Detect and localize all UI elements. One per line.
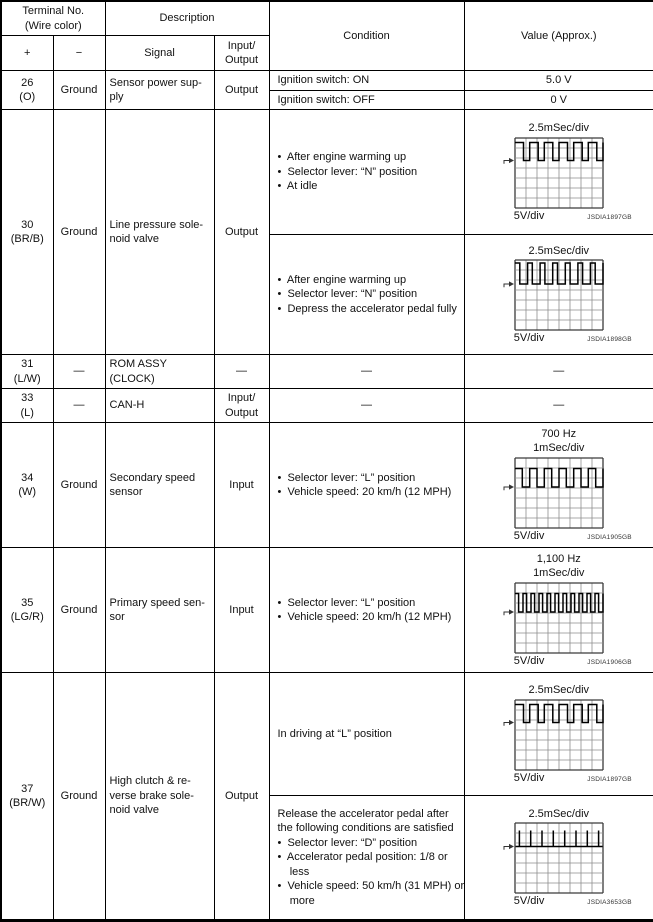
figure-code: JSDIA1897GB	[587, 213, 631, 222]
cell-ground-26: Ground	[53, 71, 105, 110]
cell-signal-33: CAN-H	[105, 389, 214, 423]
cell-signal-26: Sensor power sup- ply	[105, 71, 214, 110]
cell-io-31: —	[214, 355, 269, 389]
time-div-label: 2.5mSec/div	[484, 122, 634, 136]
header-input-output: Input/ Output	[214, 36, 269, 71]
volt-div-label: 5V/div	[514, 530, 545, 542]
cell-condition-35: • Selector lever: “L” position • Vehicle…	[269, 548, 464, 673]
cell-value-33: —	[464, 389, 653, 423]
ground-arrow-icon	[509, 844, 514, 849]
cell-value-37-release: 2.5mSec/div5V/divJSDIA3653GB	[464, 796, 653, 921]
volt-div-label: 5V/div	[514, 210, 545, 222]
header-plus: +	[1, 36, 53, 71]
cell-terminal-26: 26 (O)	[1, 71, 53, 110]
cell-io-34: Input	[214, 423, 269, 548]
ground-arrow-icon	[509, 282, 514, 287]
oscilloscope-figure: 2.5mSec/div5V/divJSDIA3653GB	[484, 808, 634, 908]
waveform-grid	[502, 137, 604, 209]
cell-terminal-33: 33 (L)	[1, 389, 53, 423]
volt-div-label: 5V/div	[514, 655, 545, 667]
figure-code: JSDIA1898GB	[587, 335, 631, 344]
oscilloscope-figure: 2.5mSec/div5V/divJSDIA1897GB	[484, 684, 634, 784]
cell-value-34: 700 Hz1mSec/div5V/divJSDIA1905GB	[464, 423, 653, 548]
cell-condition-31: —	[269, 355, 464, 389]
oscilloscope-figure: 700 Hz1mSec/div5V/divJSDIA1905GB	[484, 428, 634, 542]
cell-terminal-35: 35 (LG/R)	[1, 548, 53, 673]
figure-code: JSDIA1906GB	[587, 658, 631, 667]
cell-io-30: Output	[214, 110, 269, 355]
cell-value-30-full: 2.5mSec/div5V/divJSDIA1898GB	[464, 235, 653, 355]
cell-ground-37: Ground	[53, 673, 105, 921]
time-div-label: 1mSec/div	[484, 442, 634, 456]
cell-signal-35: Primary speed sen- sor	[105, 548, 214, 673]
waveform-grid	[502, 822, 604, 894]
cell-io-37: Output	[214, 673, 269, 921]
cell-terminal-37: 37 (BR/W)	[1, 673, 53, 921]
cell-value-26-off: 0 V	[464, 90, 653, 110]
frequency-label: 1,100 Hz	[484, 553, 634, 567]
cell-value-35: 1,100 Hz1mSec/div5V/divJSDIA1906GB	[464, 548, 653, 673]
waveform-grid	[502, 699, 604, 771]
header-value: Value (Approx.)	[464, 1, 653, 71]
ground-arrow-icon	[509, 720, 514, 725]
cell-condition-37-L: In driving at “L” position	[269, 673, 464, 796]
ground-arrow-icon	[509, 484, 514, 489]
header-condition: Condition	[269, 1, 464, 71]
cell-condition-30-full: • After engine warming up • Selector lev…	[269, 235, 464, 355]
cell-value-30-idle: 2.5mSec/div5V/divJSDIA1897GB	[464, 110, 653, 235]
volt-div-label: 5V/div	[514, 772, 545, 784]
figure-code: JSDIA1897GB	[587, 775, 631, 784]
cell-signal-37: High clutch & re- verse brake sole- noid…	[105, 673, 214, 921]
ground-arrow-icon	[509, 609, 514, 614]
cell-ground-35: Ground	[53, 548, 105, 673]
time-div-label: 2.5mSec/div	[484, 684, 634, 698]
cell-io-26: Output	[214, 71, 269, 110]
cell-value-37-L: 2.5mSec/div5V/divJSDIA1897GB	[464, 673, 653, 796]
figure-code: JSDIA3653GB	[587, 898, 631, 907]
header-terminal-no: Terminal No. (Wire color)	[1, 1, 105, 36]
cell-ground-31: —	[53, 355, 105, 389]
oscilloscope-figure: 1,100 Hz1mSec/div5V/divJSDIA1906GB	[484, 553, 634, 667]
header-description: Description	[105, 1, 269, 36]
waveform-grid	[502, 259, 604, 331]
waveform-grid	[502, 457, 604, 529]
cell-io-33: Input/ Output	[214, 389, 269, 423]
cell-signal-34: Secondary speed sensor	[105, 423, 214, 548]
cell-condition-30-idle: • After engine warming up • Selector lev…	[269, 110, 464, 235]
cell-signal-30: Line pressure sole- noid valve	[105, 110, 214, 355]
volt-div-label: 5V/div	[514, 332, 545, 344]
figure-code: JSDIA1905GB	[587, 533, 631, 542]
volt-div-label: 5V/div	[514, 895, 545, 907]
cell-ground-33: —	[53, 389, 105, 423]
cell-value-26-on: 5.0 V	[464, 71, 653, 91]
cell-io-35: Input	[214, 548, 269, 673]
time-div-label: 1mSec/div	[484, 567, 634, 581]
ground-arrow-icon	[509, 158, 514, 163]
cell-ground-30: Ground	[53, 110, 105, 355]
header-minus: −	[53, 36, 105, 71]
time-div-label: 2.5mSec/div	[484, 808, 634, 822]
cell-ground-34: Ground	[53, 423, 105, 548]
waveform-grid	[502, 582, 604, 654]
cell-condition-26-off: Ignition switch: OFF	[269, 90, 464, 110]
header-signal: Signal	[105, 36, 214, 71]
cell-condition-37-release: Release the accelerator pedal after the …	[269, 796, 464, 921]
cell-condition-26-on: Ignition switch: ON	[269, 71, 464, 91]
cell-value-31: —	[464, 355, 653, 389]
cell-condition-33: —	[269, 389, 464, 423]
cell-terminal-34: 34 (W)	[1, 423, 53, 548]
cell-terminal-31: 31 (L/W)	[1, 355, 53, 389]
cell-terminal-30: 30 (BR/B)	[1, 110, 53, 355]
frequency-label: 700 Hz	[484, 428, 634, 442]
cell-condition-34: • Selector lever: “L” position • Vehicle…	[269, 423, 464, 548]
oscilloscope-figure: 2.5mSec/div5V/divJSDIA1898GB	[484, 245, 634, 345]
terminal-table: Terminal No. (Wire color) Description Co…	[0, 0, 653, 922]
time-div-label: 2.5mSec/div	[484, 245, 634, 259]
oscilloscope-figure: 2.5mSec/div5V/divJSDIA1897GB	[484, 122, 634, 222]
cell-signal-31: ROM ASSY (CLOCK)	[105, 355, 214, 389]
